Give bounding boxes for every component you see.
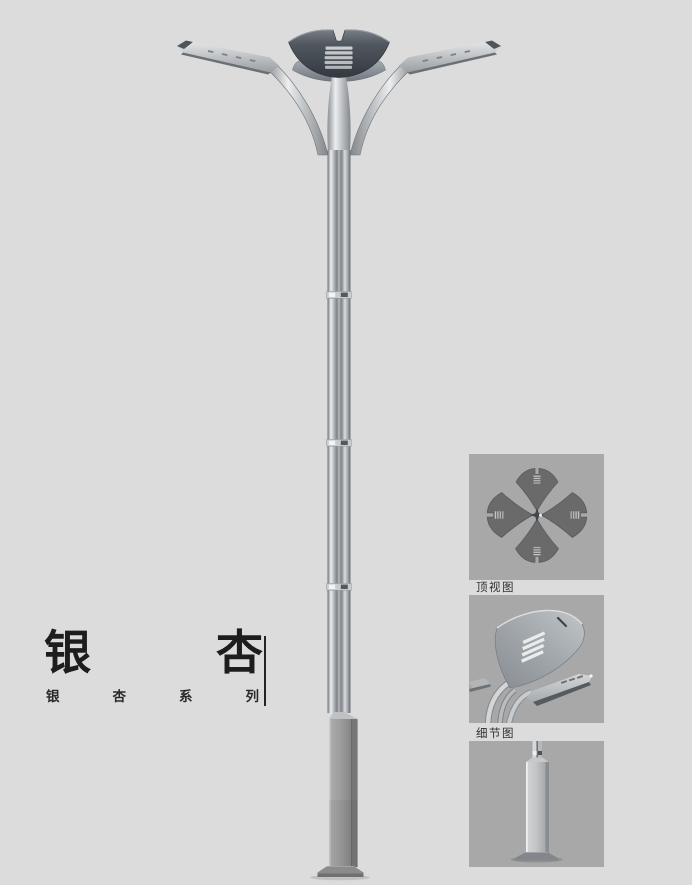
top-view-caption: 顶视图 bbox=[476, 583, 515, 595]
lamp-pole bbox=[327, 76, 352, 713]
detail-view-caption: 细节图 bbox=[476, 729, 515, 741]
catalog-page: ········································… bbox=[0, 0, 692, 885]
panel-base-view bbox=[469, 741, 604, 867]
series-char: 列 bbox=[246, 690, 260, 704]
top-view-image bbox=[469, 454, 604, 580]
panel-detail-view bbox=[469, 595, 604, 723]
lamp-base bbox=[310, 712, 370, 880]
base-view-image bbox=[469, 741, 604, 867]
series-char: 银 bbox=[46, 690, 60, 704]
series-label: 银 杏 系 列 bbox=[46, 690, 259, 704]
title-char: 杏 bbox=[216, 629, 263, 676]
series-char: 杏 bbox=[113, 690, 127, 704]
detail-view-image bbox=[469, 595, 604, 723]
series-char: 系 bbox=[179, 690, 193, 704]
title-char: 银 bbox=[44, 629, 91, 676]
product-title: 银 杏 bbox=[44, 629, 263, 676]
title-divider bbox=[264, 636, 266, 706]
panel-top-view bbox=[469, 454, 604, 580]
